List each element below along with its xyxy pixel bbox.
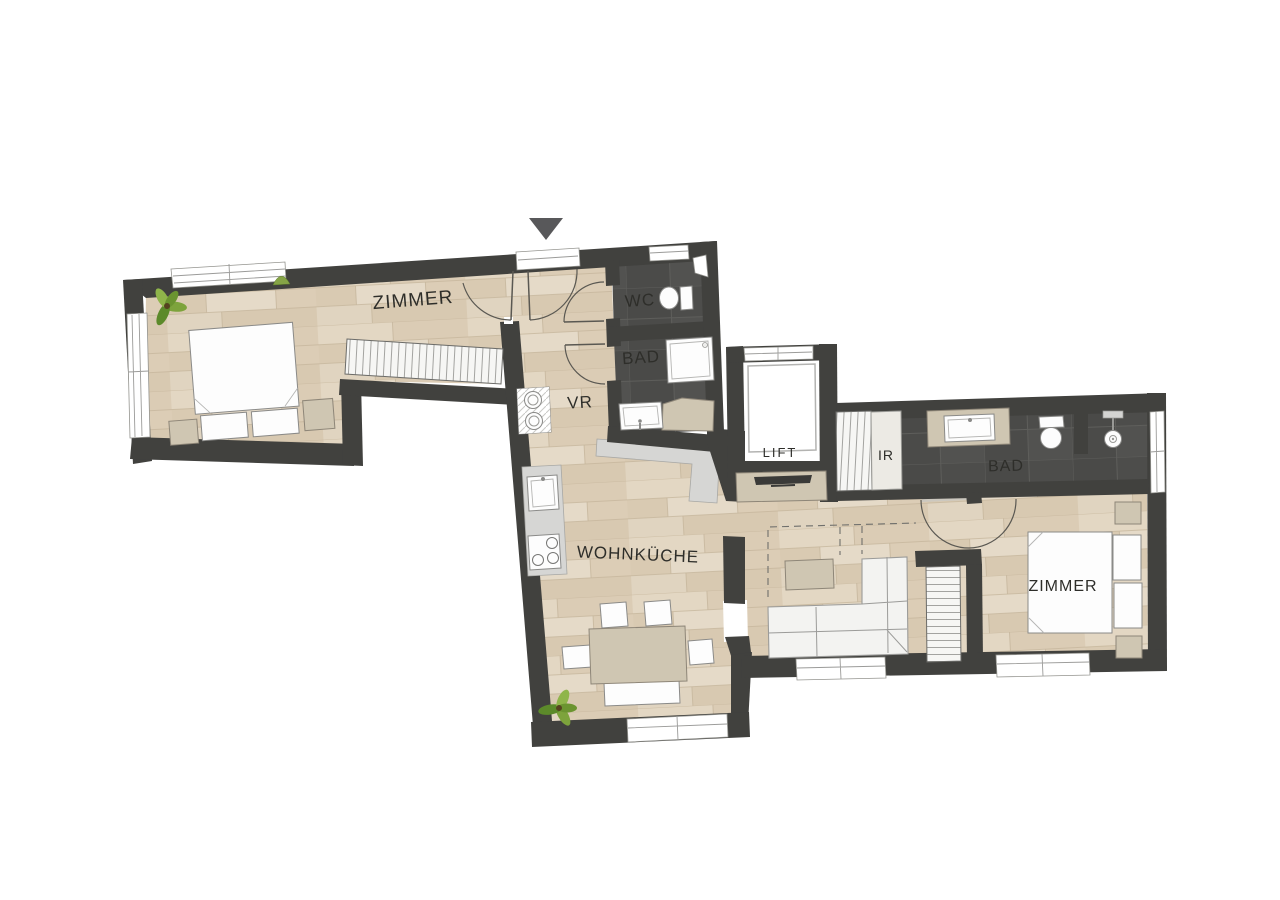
nightstand-top-right bbox=[1115, 502, 1141, 524]
wc-door-leaf bbox=[564, 321, 604, 322]
shower-arm bbox=[1103, 411, 1123, 418]
wall-door-jamb bbox=[966, 492, 982, 504]
toilet-bowl-right bbox=[1041, 428, 1062, 449]
floor-lift-shaft bbox=[742, 357, 822, 459]
wall-L-horizontal bbox=[915, 549, 982, 567]
bath-counter-left bbox=[662, 398, 714, 431]
bed-pillow-1 bbox=[201, 412, 249, 441]
room-label-lift: LIFT bbox=[763, 445, 798, 460]
room-label-ir: IR bbox=[878, 447, 894, 463]
wall-kitchen-east-mid bbox=[723, 536, 745, 604]
dining-table bbox=[589, 626, 687, 684]
dining-bench bbox=[604, 680, 680, 706]
nightstand-left bbox=[169, 419, 199, 445]
bed-pillow-right-2 bbox=[1114, 583, 1142, 628]
wall-shower-divider bbox=[1074, 409, 1088, 454]
nightstand-right bbox=[303, 398, 335, 430]
floor-plan-svg: ZIMMER WC BAD VR WOHNKÜCHE LIFT IR BAD Z… bbox=[0, 0, 1280, 900]
wall-wc-west-top bbox=[605, 260, 620, 286]
chair bbox=[688, 639, 714, 665]
chair bbox=[644, 600, 672, 626]
wall-L-vertical bbox=[966, 564, 983, 661]
chair bbox=[562, 645, 592, 669]
wall-lift-west bbox=[726, 346, 745, 467]
room-label-bad-left: BAD bbox=[621, 347, 660, 369]
chair bbox=[600, 602, 628, 628]
bad-left-door-leaf bbox=[565, 344, 605, 345]
bed-pillow-right-1 bbox=[1113, 535, 1141, 580]
wardrobe-right bbox=[926, 566, 961, 662]
room-label-zimmer-right: ZIMMER bbox=[1028, 578, 1097, 595]
exterior-notch bbox=[723, 600, 748, 642]
washer-dryer bbox=[517, 387, 551, 434]
coffee-table bbox=[785, 559, 834, 590]
toilet-tank bbox=[680, 286, 693, 310]
window-zimmer-left-west bbox=[127, 313, 150, 438]
floorplan-canvas: ZIMMER WC BAD VR WOHNKÜCHE LIFT IR BAD Z… bbox=[0, 0, 1280, 900]
kitchen-counter bbox=[522, 465, 567, 576]
nightstand-bottom-right bbox=[1116, 636, 1142, 658]
entrance-marker-icon bbox=[529, 218, 563, 240]
room-label-wc: WC bbox=[624, 290, 656, 311]
entrance-opening bbox=[516, 248, 580, 270]
room-label-bad-right: BAD bbox=[988, 458, 1024, 476]
bed-pillow-2 bbox=[251, 408, 299, 437]
room-label-vr: VR bbox=[567, 392, 594, 412]
toilet-tank-right bbox=[1039, 416, 1064, 428]
bed-duvet bbox=[189, 322, 299, 414]
